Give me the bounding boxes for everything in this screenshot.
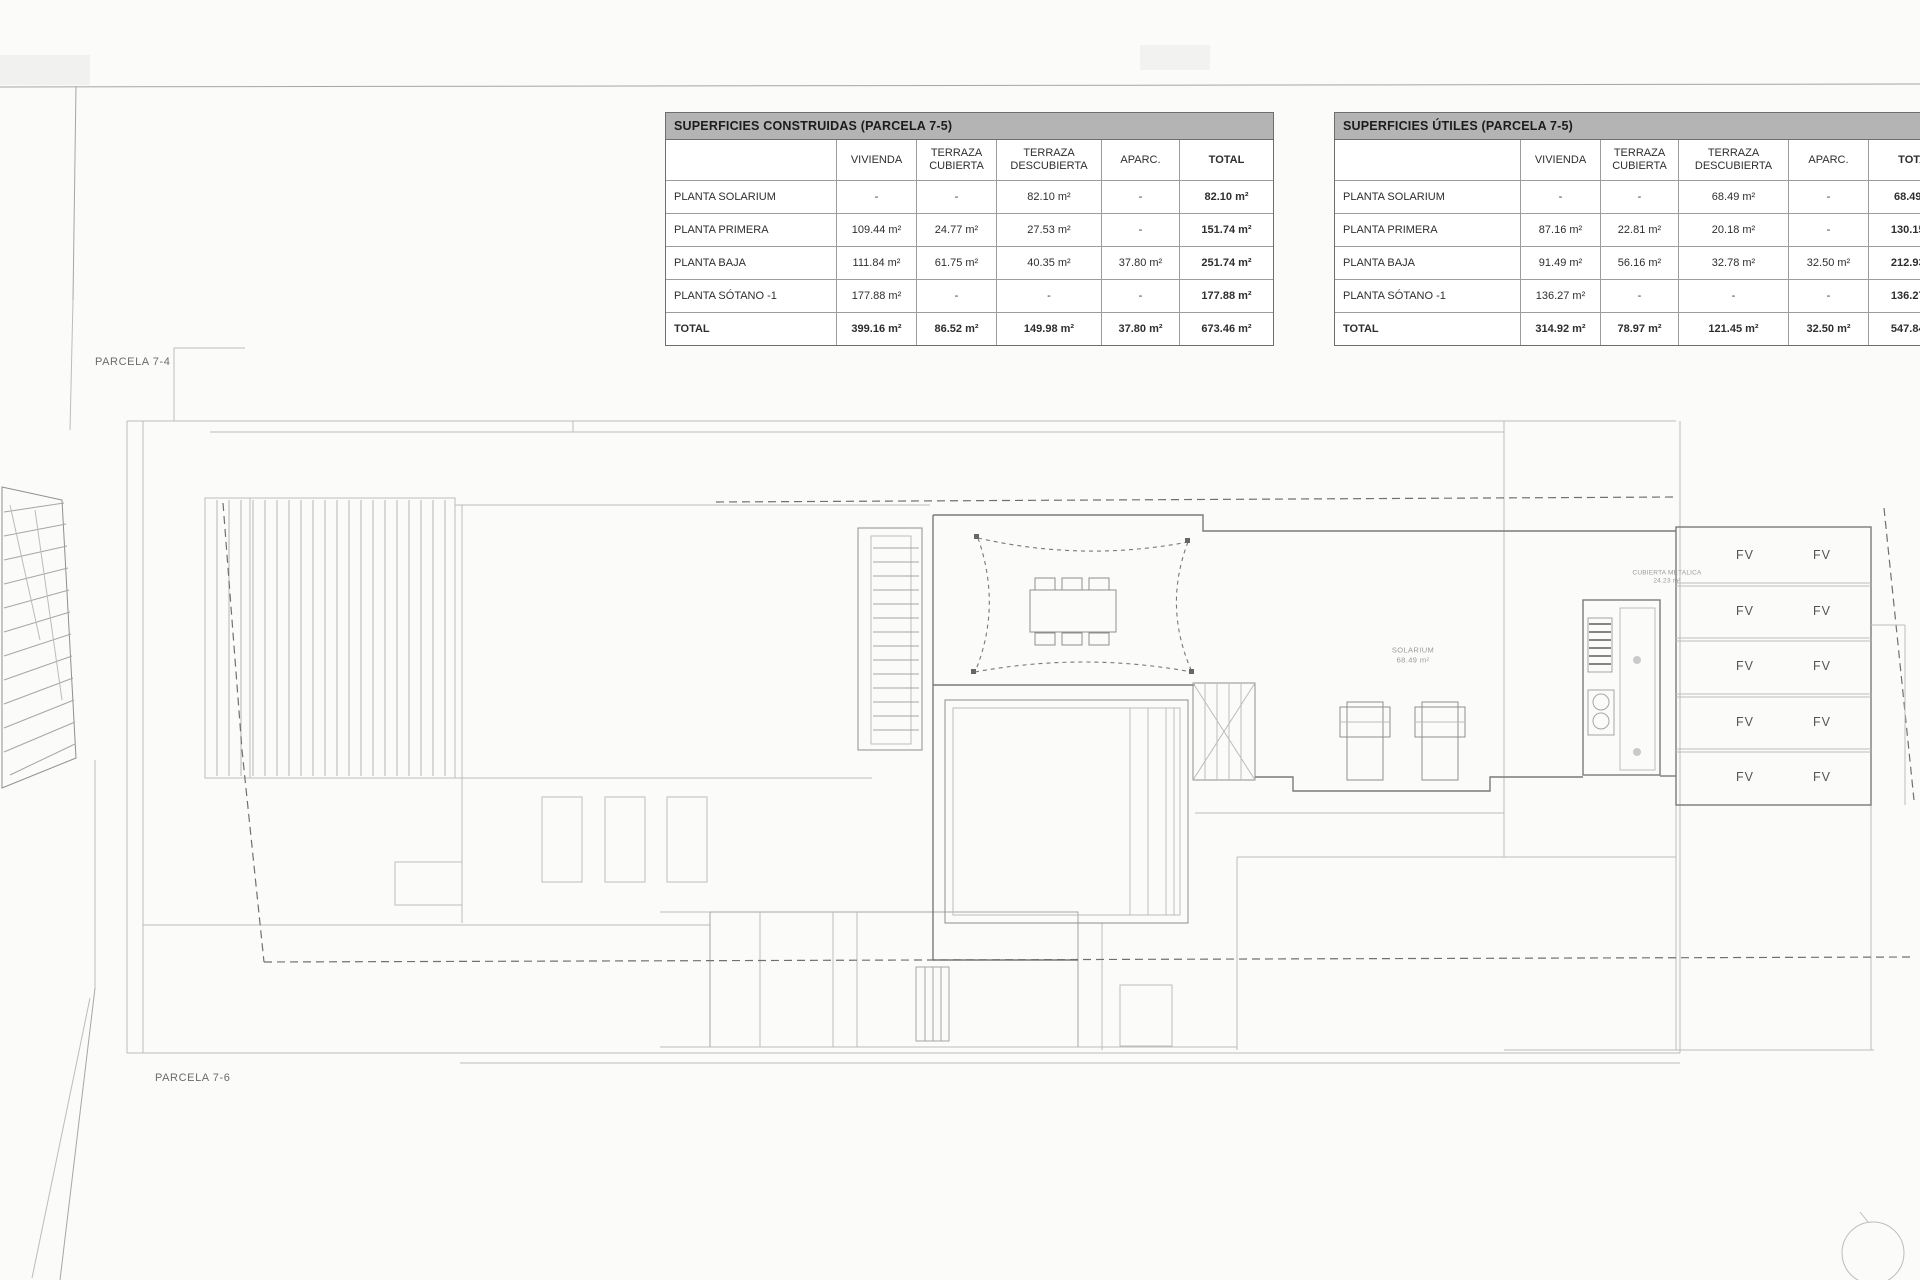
fv-panel-label: FV — [1813, 659, 1831, 673]
cell: 20.18 m² — [1678, 213, 1788, 246]
cell: 86.52 m² — [916, 312, 996, 345]
parcela-7-6-label: PARCELA 7-6 — [155, 1072, 230, 1084]
cell: - — [1600, 180, 1678, 213]
col-header: VIVIENDA — [1520, 140, 1600, 180]
col-header: TOTAL — [1179, 140, 1273, 180]
cell: 177.88 m² — [1179, 279, 1273, 312]
drawing-sheet: PARCELA 7-4 PARCELA 7-6 SOLARIUM 68.49 m… — [0, 0, 1920, 1280]
cell: 212.93 m² — [1868, 246, 1920, 279]
cell: 61.75 m² — [916, 246, 996, 279]
row-label: PLANTA SOLARIUM — [1335, 180, 1520, 213]
col-header: APARC. — [1788, 140, 1868, 180]
cell: 109.44 m² — [836, 213, 916, 246]
cell: 82.10 m² — [1179, 180, 1273, 213]
cell: - — [1520, 180, 1600, 213]
cell: 149.98 m² — [996, 312, 1101, 345]
cell: 177.88 m² — [836, 279, 916, 312]
fv-panel-label: FV — [1813, 715, 1831, 729]
col-header: TERRAZA CUBIERTA — [916, 140, 996, 180]
cell: - — [1678, 279, 1788, 312]
cell: 24.77 m² — [916, 213, 996, 246]
row-label: PLANTA PRIMERA — [1335, 213, 1520, 246]
row-label: PLANTA SÓTANO -1 — [666, 279, 836, 312]
col-header: APARC. — [1101, 140, 1179, 180]
cell: 37.80 m² — [1101, 312, 1179, 345]
cell: 130.15 m² — [1868, 213, 1920, 246]
usable-surfaces-table: SUPERFICIES ÚTILES (PARCELA 7-5) VIVIEND… — [1334, 112, 1920, 346]
fv-panel-label: FV — [1813, 548, 1831, 562]
cell: - — [1788, 279, 1868, 312]
cell: - — [1600, 279, 1678, 312]
solarium-area-label: SOLARIUM 68.49 m² — [1392, 645, 1434, 665]
cell: 22.81 m² — [1600, 213, 1678, 246]
row-label: PLANTA SOLARIUM — [666, 180, 836, 213]
cell: - — [916, 279, 996, 312]
metal-roof-label: CUBIERTA METALICA 24.23 m² — [1632, 570, 1701, 587]
table-title: SUPERFICIES ÚTILES (PARCELA 7-5) — [1335, 113, 1920, 140]
col-header — [666, 140, 836, 180]
cell: 121.45 m² — [1678, 312, 1788, 345]
cell: - — [836, 180, 916, 213]
cell: 151.74 m² — [1179, 213, 1273, 246]
table-title: SUPERFICIES CONSTRUIDAS (PARCELA 7-5) — [666, 113, 1273, 140]
metal-roof-value: 24.23 m² — [1632, 578, 1701, 586]
cell: 37.80 m² — [1101, 246, 1179, 279]
cell: 32.50 m² — [1788, 312, 1868, 345]
cell: 32.50 m² — [1788, 246, 1868, 279]
cell: - — [916, 180, 996, 213]
cell: - — [1788, 213, 1868, 246]
cell: 399.16 m² — [836, 312, 916, 345]
cell: 87.16 m² — [1520, 213, 1600, 246]
col-header: VIVIENDA — [836, 140, 916, 180]
solarium-area-value: 68.49 m² — [1392, 655, 1434, 665]
row-label: TOTAL — [666, 312, 836, 345]
col-header — [1335, 140, 1520, 180]
fv-panel-label: FV — [1736, 659, 1754, 673]
cell: 56.16 m² — [1600, 246, 1678, 279]
cell: - — [1101, 180, 1179, 213]
row-label: PLANTA SÓTANO -1 — [1335, 279, 1520, 312]
cell: 251.74 m² — [1179, 246, 1273, 279]
metal-roof-name: CUBIERTA METALICA — [1632, 570, 1701, 578]
cell: 547.84 m² — [1868, 312, 1920, 345]
row-label: TOTAL — [1335, 312, 1520, 345]
fv-panel-label: FV — [1736, 604, 1754, 618]
row-label: PLANTA BAJA — [666, 246, 836, 279]
parcela-7-4-label: PARCELA 7-4 — [95, 356, 170, 368]
cell: - — [1788, 180, 1868, 213]
fv-panel-label: FV — [1736, 715, 1754, 729]
fv-panel-label: FV — [1736, 548, 1754, 562]
cell: 673.46 m² — [1179, 312, 1273, 345]
row-label: PLANTA PRIMERA — [666, 213, 836, 246]
cell: - — [1101, 213, 1179, 246]
cell: 68.49 m² — [1868, 180, 1920, 213]
cell: 82.10 m² — [996, 180, 1101, 213]
cell: 27.53 m² — [996, 213, 1101, 246]
cell: 78.97 m² — [1600, 312, 1678, 345]
col-header: TERRAZA CUBIERTA — [1600, 140, 1678, 180]
fv-panel-label: FV — [1813, 604, 1831, 618]
cell: 40.35 m² — [996, 246, 1101, 279]
col-header: TOTAL — [1868, 140, 1920, 180]
cell: 136.27 m² — [1868, 279, 1920, 312]
cell: 91.49 m² — [1520, 246, 1600, 279]
fv-panel-label: FV — [1736, 770, 1754, 784]
solarium-area-name: SOLARIUM — [1392, 645, 1434, 655]
built-surfaces-table: SUPERFICIES CONSTRUIDAS (PARCELA 7-5) VI… — [665, 112, 1274, 346]
cell: 111.84 m² — [836, 246, 916, 279]
col-header: TERRAZA DESCUBIERTA — [1678, 140, 1788, 180]
cell: 32.78 m² — [1678, 246, 1788, 279]
cell: - — [996, 279, 1101, 312]
col-header: TERRAZA DESCUBIERTA — [996, 140, 1101, 180]
fv-panel-label: FV — [1813, 770, 1831, 784]
cell: 314.92 m² — [1520, 312, 1600, 345]
cell: 136.27 m² — [1520, 279, 1600, 312]
cell: - — [1101, 279, 1179, 312]
row-label: PLANTA BAJA — [1335, 246, 1520, 279]
cell: 68.49 m² — [1678, 180, 1788, 213]
